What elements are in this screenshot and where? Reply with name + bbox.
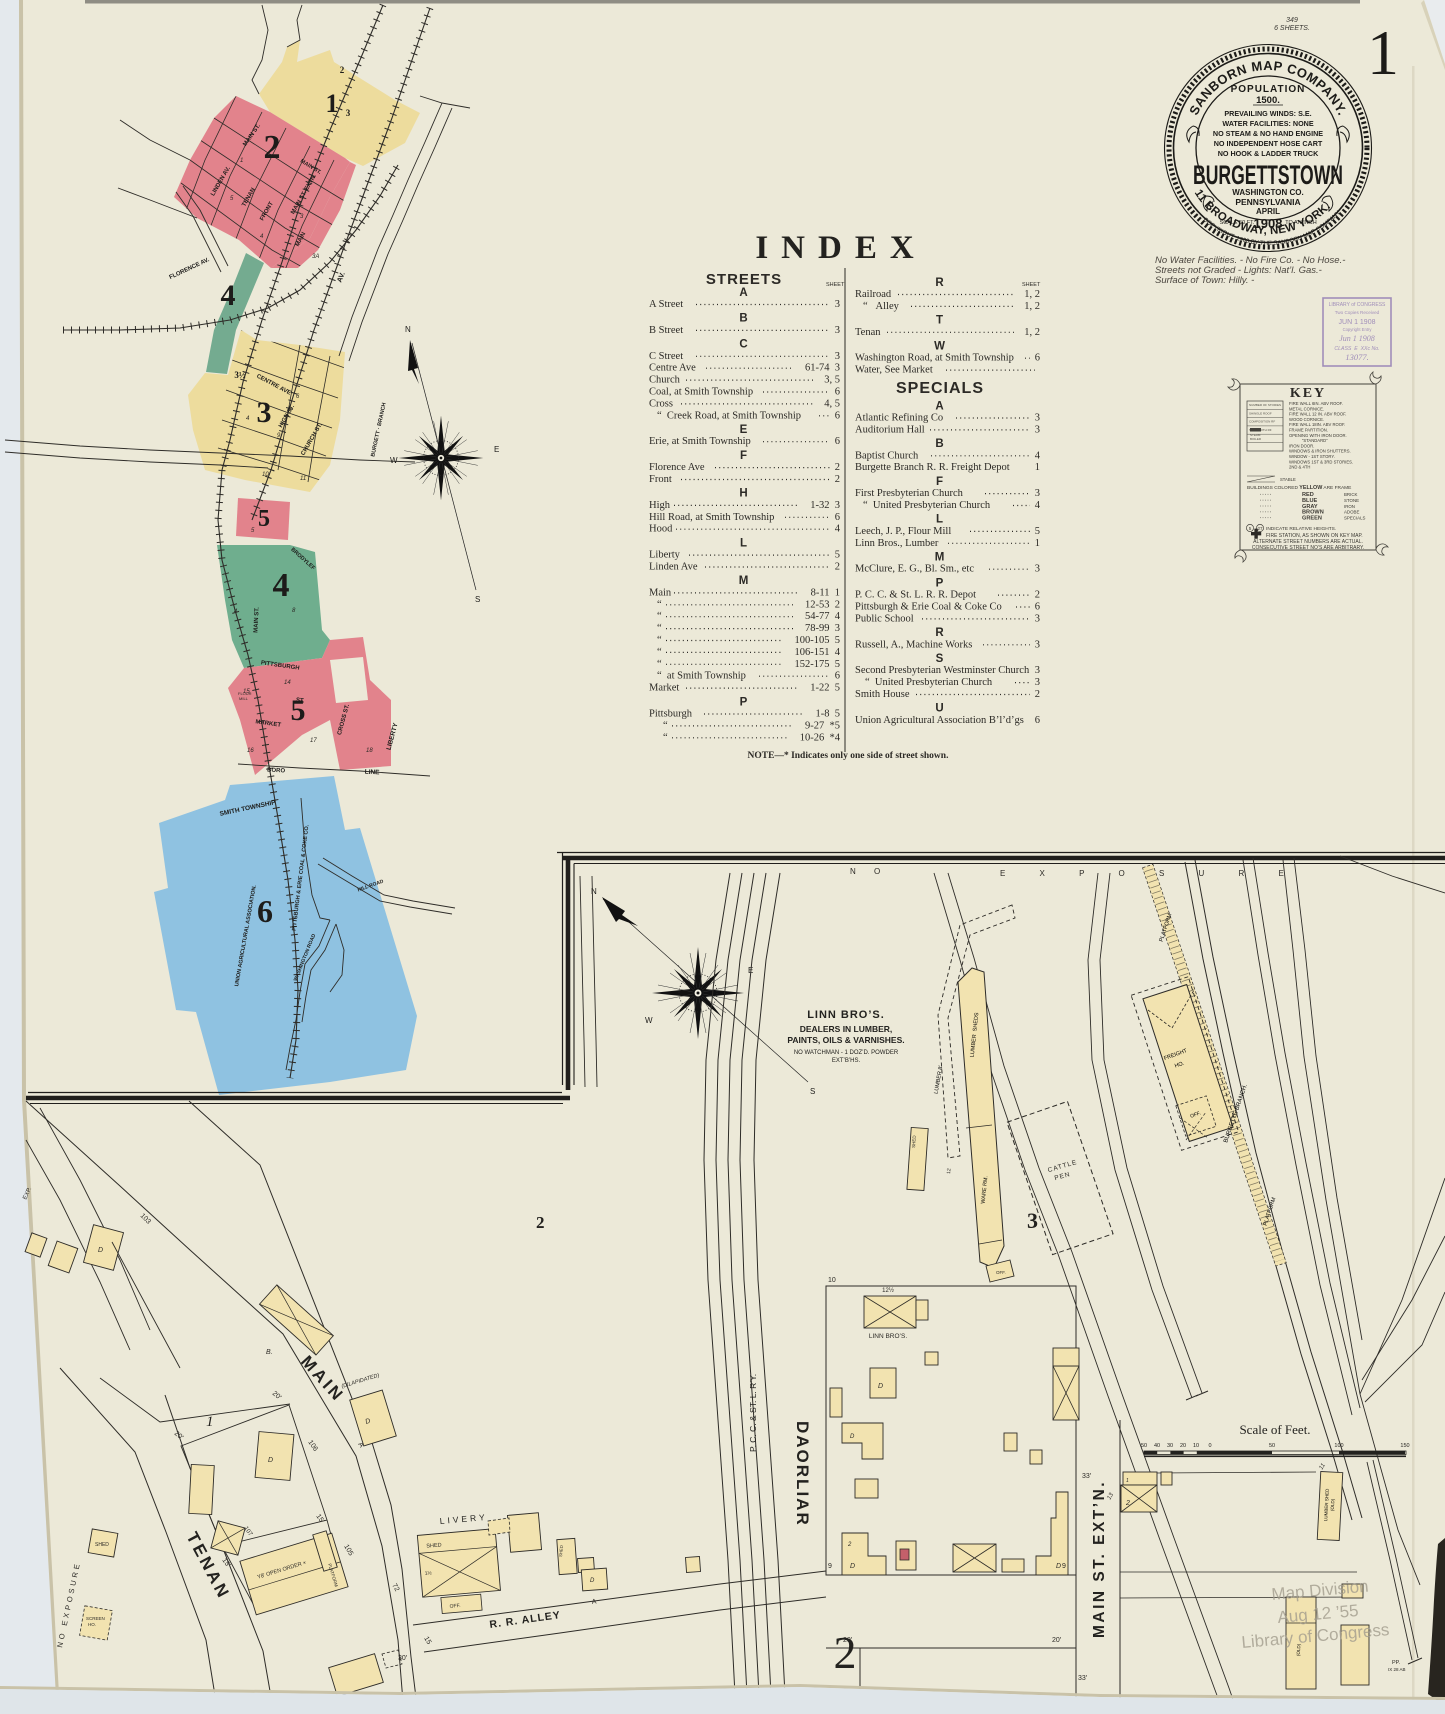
svg-text:6: 6 xyxy=(835,671,840,682)
svg-text:LIBRARY of CONGRESS: LIBRARY of CONGRESS xyxy=(1329,302,1386,308)
svg-text:Auditorium Hall: Auditorium Hall xyxy=(855,424,925,435)
svg-text:DEALERS IN LUMBER,: DEALERS IN LUMBER, xyxy=(800,1024,893,1034)
svg-text:12½: 12½ xyxy=(882,1287,894,1294)
svg-text:20: 20 xyxy=(1180,1443,1186,1449)
svg-text:1: 1 xyxy=(1035,462,1040,473)
svg-text:Copyright Entry: Copyright Entry xyxy=(1343,327,1373,332)
svg-text:Leech, J. P., Flour Mill: Leech, J. P., Flour Mill xyxy=(855,526,951,537)
svg-text:106-151 4: 106-151 4 xyxy=(795,647,841,658)
svg-text:SCALE 50 FT.: SCALE 50 FT. xyxy=(1220,220,1255,226)
svg-text:NO INDEPENDENT HOSE CART: NO INDEPENDENT HOSE CART xyxy=(1214,139,1323,148)
svg-text:A Street: A Street xyxy=(649,299,683,310)
svg-text:17: 17 xyxy=(310,738,317,744)
svg-text:14: 14 xyxy=(284,680,291,686)
svg-text:PENNSYLVANIA: PENNSYLVANIA xyxy=(1235,197,1300,207)
svg-text:(OLD): (OLD) xyxy=(1330,1498,1336,1511)
svg-text:MAIN ST. EXT’N.: MAIN ST. EXT’N. xyxy=(1091,1480,1108,1638)
svg-text:M: M xyxy=(935,552,946,564)
svg-text:NUMBER OF STORIES: NUMBER OF STORIES xyxy=(1249,403,1281,407)
svg-text:LINE: LINE xyxy=(364,769,380,777)
svg-text:4: 4 xyxy=(221,279,236,312)
svg-text:OFF.: OFF. xyxy=(449,1603,460,1610)
svg-text:A: A xyxy=(739,287,748,299)
svg-text:B: B xyxy=(935,438,944,450)
svg-text:9-27 *5: 9-27 *5 xyxy=(805,720,840,731)
svg-text:27: 27 xyxy=(1257,526,1263,531)
svg-text:9: 9 xyxy=(828,1563,832,1570)
svg-text:Two Copies Received: Two Copies Received xyxy=(1335,310,1380,315)
svg-text:E: E xyxy=(494,445,499,454)
svg-text:PP.: PP. xyxy=(1392,1660,1401,1666)
svg-text:6: 6 xyxy=(1035,602,1040,613)
svg-text:Florence Ave: Florence Ave xyxy=(649,462,705,473)
svg-text:Hood: Hood xyxy=(649,524,673,535)
svg-text:COMPOSITION RF: COMPOSITION RF xyxy=(1249,420,1275,424)
svg-text:1500.: 1500. xyxy=(1256,95,1280,106)
svg-text:PEN: PEN xyxy=(1054,1171,1072,1182)
svg-text:1: 1 xyxy=(1367,17,1399,88)
svg-text:OPENING WITH IRON DOOR.: OPENING WITH IRON DOOR. xyxy=(1289,433,1347,438)
svg-text:WINDOWS & IRON SHUTTERS.: WINDOWS & IRON SHUTTERS. xyxy=(1289,449,1351,454)
svg-text:105: 105 xyxy=(342,1544,354,1558)
svg-text:S: S xyxy=(936,653,945,665)
svg-text:6 SHEETS.: 6 SHEETS. xyxy=(1274,25,1310,32)
svg-text:3: 3 xyxy=(1035,639,1040,650)
svg-text:2: 2 xyxy=(1035,689,1040,700)
svg-text:2: 2 xyxy=(835,562,840,573)
svg-text:150: 150 xyxy=(1400,1443,1409,1449)
svg-text:2: 2 xyxy=(340,65,345,75)
svg-text:METAL CORNICE.: METAL CORNICE. xyxy=(1289,406,1324,411)
svg-text:L: L xyxy=(936,514,944,526)
svg-text:2: 2 xyxy=(1125,1500,1130,1507)
svg-text:R. R. ALLEY: R. R. ALLEY xyxy=(489,1609,562,1631)
svg-text:2: 2 xyxy=(847,1542,852,1548)
svg-text:F: F xyxy=(936,476,944,488)
svg-text:“: “ xyxy=(657,647,662,658)
svg-text:W: W xyxy=(390,456,398,465)
svg-text:BRICK: BRICK xyxy=(1344,492,1357,497)
svg-text:Atlantic Refining Co: Atlantic Refining Co xyxy=(855,413,943,424)
svg-text:Public School: Public School xyxy=(855,613,914,624)
svg-text:A: A xyxy=(356,1441,365,1449)
svg-text:BOILER: BOILER xyxy=(1250,437,1262,441)
svg-text:SCREEN: SCREEN xyxy=(86,1616,105,1621)
svg-text:6: 6 xyxy=(1035,715,1040,726)
svg-text:103: 103 xyxy=(139,1212,152,1225)
svg-text:1: 1 xyxy=(1035,538,1040,549)
svg-text:WASHINGTON CO.: WASHINGTON CO. xyxy=(1232,188,1303,197)
svg-text:0: 0 xyxy=(1208,1443,1211,1449)
svg-text:1: 1 xyxy=(326,89,339,118)
svg-text:6: 6 xyxy=(835,410,840,421)
svg-text:1-8 5: 1-8 5 xyxy=(816,709,841,720)
svg-text:Market: Market xyxy=(649,683,679,694)
svg-text:SHEET: SHEET xyxy=(1022,282,1041,288)
svg-text:Cross: Cross xyxy=(649,398,673,409)
svg-text:3: 3 xyxy=(835,351,840,362)
svg-text:SPECIALS: SPECIALS xyxy=(1344,516,1366,521)
svg-text:5: 5 xyxy=(835,550,840,561)
svg-text:FIRE WALL 12 IN. ABV ROOF.: FIRE WALL 12 IN. ABV ROOF. xyxy=(1289,412,1346,417)
svg-text:MILL: MILL xyxy=(239,696,249,701)
svg-text:ST.: ST. xyxy=(295,697,305,704)
svg-text:LINN BRO’S.: LINN BRO’S. xyxy=(869,1333,907,1340)
svg-text:Pittsburgh: Pittsburgh xyxy=(649,709,693,720)
svg-text:D: D xyxy=(268,1457,273,1464)
svg-text:72: 72 xyxy=(390,1583,400,1593)
svg-text:40: 40 xyxy=(1154,1443,1160,1449)
svg-text:B.: B. xyxy=(266,1349,273,1356)
svg-text:Washington Road, at Smith Town: Washington Road, at Smith Township xyxy=(855,353,1014,364)
svg-text:First Presbyterian Church: First Presbyterian Church xyxy=(855,488,964,499)
svg-text:“: “ xyxy=(657,623,662,634)
svg-text:WATER FACILITIES: NONE: WATER FACILITIES: NONE xyxy=(1222,119,1314,128)
svg-text:6: 6 xyxy=(257,893,273,929)
svg-text:3: 3 xyxy=(1035,677,1040,688)
svg-text:11: 11 xyxy=(1319,1463,1327,1471)
svg-text:SHED: SHED xyxy=(911,1135,917,1149)
svg-text:FIRE WALL 6IN. ABV ROOF.: FIRE WALL 6IN. ABV ROOF. xyxy=(1289,401,1343,406)
svg-text:Water, See Market: Water, See Market xyxy=(855,365,933,376)
svg-text:FIRE WALL 18IN. ABV ROOF.: FIRE WALL 18IN. ABV ROOF. xyxy=(1289,422,1345,427)
svg-text:“STANDARD”: “STANDARD” xyxy=(1302,438,1328,443)
svg-text:“: “ xyxy=(657,599,662,610)
svg-text:L: L xyxy=(740,537,748,549)
svg-text:50: 50 xyxy=(1269,1443,1275,1449)
svg-text:MAIN: MAIN xyxy=(297,1352,348,1406)
svg-text:PREVAILING WINDS: S.E.: PREVAILING WINDS: S.E. xyxy=(1224,109,1311,118)
svg-text:5: 5 xyxy=(1035,526,1040,537)
svg-text:GREEN: GREEN xyxy=(1302,516,1322,522)
svg-text:100: 100 xyxy=(1334,1443,1343,1449)
svg-text:2: 2 xyxy=(835,474,840,485)
svg-text:4, 5: 4, 5 xyxy=(824,398,840,409)
svg-text:NO WATCHMAN - 1 DOZ’D. POWDER: NO WATCHMAN - 1 DOZ’D. POWDER xyxy=(794,1050,899,1056)
svg-text:61-74 3: 61-74 3 xyxy=(805,363,840,374)
svg-text:8-11 1: 8-11 1 xyxy=(811,587,840,598)
svg-text:U: U xyxy=(935,703,944,715)
svg-text:N O: N O xyxy=(850,867,888,876)
svg-text:30: 30 xyxy=(1167,1443,1173,1449)
svg-text:1: 1 xyxy=(206,1414,214,1430)
svg-text:BUILDINGS COLORED YELLOW ARE F: BUILDINGS COLORED YELLOW ARE FRAME xyxy=(1247,485,1351,491)
svg-text:20′: 20′ xyxy=(1052,1637,1062,1644)
svg-text:152-175 5: 152-175 5 xyxy=(795,659,841,670)
svg-text:6: 6 xyxy=(835,436,840,447)
svg-text:3: 3 xyxy=(835,325,840,336)
svg-text:E: E xyxy=(740,424,749,436)
svg-text:S: S xyxy=(810,1087,815,1096)
svg-text:3: 3 xyxy=(1035,488,1040,499)
svg-text:78-99 3: 78-99 3 xyxy=(805,623,840,634)
svg-text:High: High xyxy=(649,500,671,511)
svg-text:Map Division: Map Division xyxy=(1271,1577,1370,1604)
svg-text:3: 3 xyxy=(1035,613,1040,624)
svg-text:100-105 5: 100-105 5 xyxy=(795,635,841,646)
svg-text:15: 15 xyxy=(422,1636,432,1646)
svg-text:16: 16 xyxy=(247,748,254,754)
svg-text:R: R xyxy=(935,277,944,289)
svg-text:F: F xyxy=(740,450,748,462)
svg-text:D: D xyxy=(98,1247,103,1254)
svg-text:NOTE—* Indicates only one side: NOTE—* Indicates only one side of street… xyxy=(748,751,949,761)
svg-text:“ United Presbyterian Church: “ United Presbyterian Church xyxy=(865,677,993,688)
svg-text:H: H xyxy=(739,488,748,500)
svg-text:2: 2 xyxy=(834,1627,857,1678)
svg-text:EXT’B’HS.: EXT’B’HS. xyxy=(832,1058,861,1064)
svg-text:D: D xyxy=(1056,1563,1061,1570)
svg-text:10: 10 xyxy=(828,1277,836,1284)
svg-text:2: 2 xyxy=(835,462,840,473)
svg-text:R: R xyxy=(935,627,944,639)
svg-text:54-77 4: 54-77 4 xyxy=(805,611,841,622)
svg-text:2: 2 xyxy=(536,1213,545,1232)
svg-text:“: “ xyxy=(657,635,662,646)
svg-text:Linn Bros., Lumber: Linn Bros., Lumber xyxy=(855,538,939,549)
svg-text:Hill Road, at Smith Township: Hill Road, at Smith Township xyxy=(649,512,774,523)
svg-text:D: D xyxy=(878,1383,883,1390)
svg-text:SHED: SHED xyxy=(558,1545,564,1557)
svg-text:1: 1 xyxy=(1126,1478,1129,1484)
svg-text:JUN 1 1908: JUN 1 1908 xyxy=(1339,319,1376,326)
svg-text:6: 6 xyxy=(835,387,840,398)
svg-text:“ Alley: “ Alley xyxy=(863,301,900,312)
svg-text:33′: 33′ xyxy=(1082,1473,1092,1480)
svg-text:HO.: HO. xyxy=(88,1622,96,1627)
svg-text:C Street: C Street xyxy=(649,351,683,362)
svg-text:APRIL: APRIL xyxy=(1256,207,1280,216)
svg-text:McClure, E. G., Bl. Sm., etc: McClure, E. G., Bl. Sm., etc xyxy=(855,564,974,575)
svg-text:3: 3 xyxy=(1035,564,1040,575)
svg-text:50: 50 xyxy=(1141,1443,1147,1449)
svg-text:W: W xyxy=(934,341,946,353)
svg-text:IRON: IRON xyxy=(1344,504,1355,509)
svg-text:2ND & 4TH: 2ND & 4TH xyxy=(1289,465,1310,470)
svg-text:BORO: BORO xyxy=(267,768,286,775)
svg-text:Second Presbyterian Westminste: Second Presbyterian Westminster Church xyxy=(855,665,1030,676)
svg-text:Railroad: Railroad xyxy=(855,289,892,300)
svg-text:4: 4 xyxy=(273,567,290,604)
svg-text:IX 28 AB: IX 28 AB xyxy=(1388,1667,1406,1672)
svg-text:1-22 5: 1-22 5 xyxy=(810,683,840,694)
svg-text:13077.: 13077. xyxy=(1345,352,1368,362)
svg-text:INDEX: INDEX xyxy=(755,230,926,266)
svg-text:Liberty: Liberty xyxy=(649,550,681,561)
svg-text:4: 4 xyxy=(835,524,841,535)
svg-text:SHED: SHED xyxy=(95,1542,109,1548)
svg-text:P: P xyxy=(740,696,749,708)
svg-text:TO AN INCH: TO AN INCH xyxy=(1285,220,1316,226)
svg-text:FLORENCE AV.: FLORENCE AV. xyxy=(169,257,211,281)
svg-text:Smith House: Smith House xyxy=(855,689,910,700)
svg-text:Front: Front xyxy=(649,474,672,485)
svg-text:10-26 *4: 10-26 *4 xyxy=(800,732,841,743)
svg-text:PAINTS, OILS & VARNISHES.: PAINTS, OILS & VARNISHES. xyxy=(787,1035,904,1045)
svg-text:6: 6 xyxy=(1035,353,1040,364)
svg-text:3: 3 xyxy=(257,396,272,429)
svg-text:3: 3 xyxy=(1035,413,1040,424)
svg-text:INDICATE RELATIVE HEIGHTS.: INDICATE RELATIVE HEIGHTS. xyxy=(1266,526,1336,532)
svg-text:3: 3 xyxy=(346,108,351,118)
svg-text:Linden Ave: Linden Ave xyxy=(649,562,698,573)
svg-text:WINDOWS 1ST & 3RD STORIES.: WINDOWS 1ST & 3RD STORIES. xyxy=(1289,459,1353,464)
svg-text:Union Agricultural Association: Union Agricultural Association B’l’d’gs xyxy=(855,715,1024,726)
svg-text:Erie, at Smith Township: Erie, at Smith Township xyxy=(649,436,751,447)
svg-text:Baptist Church: Baptist Church xyxy=(855,450,919,461)
svg-text:3: 3 xyxy=(835,299,840,310)
svg-text:3: 3 xyxy=(1027,1208,1038,1233)
svg-text:WINDOW - 1ST STORY.: WINDOW - 1ST STORY. xyxy=(1289,454,1335,459)
svg-text:Russell, A., Machine Works: Russell, A., Machine Works xyxy=(855,639,972,650)
svg-text:4: 4 xyxy=(1035,450,1041,461)
svg-text:1, 2: 1, 2 xyxy=(1024,327,1040,338)
svg-text:“: “ xyxy=(663,720,668,731)
svg-text:9: 9 xyxy=(1062,1563,1066,1570)
svg-text:STABLE: STABLE xyxy=(1280,477,1296,482)
svg-text:1, 2: 1, 2 xyxy=(1024,289,1040,300)
svg-text:Scale of Feet.: Scale of Feet. xyxy=(1239,1422,1310,1437)
svg-text:P: P xyxy=(936,577,945,589)
svg-text:3: 3 xyxy=(1035,424,1040,435)
svg-text:3A: 3A xyxy=(312,254,319,260)
svg-text:11: 11 xyxy=(300,476,306,482)
svg-text:20′: 20′ xyxy=(271,1390,283,1402)
svg-text:1: 1 xyxy=(240,158,243,164)
svg-text:10: 10 xyxy=(1193,1443,1199,1449)
svg-text:(DILAPIDATED): (DILAPIDATED) xyxy=(341,1373,381,1390)
svg-text:“: “ xyxy=(657,611,662,622)
svg-text:1-32 3: 1-32 3 xyxy=(810,500,840,511)
svg-text:NO HOOK & LADDER TRUCK: NO HOOK & LADDER TRUCK xyxy=(1218,149,1319,158)
svg-text:“ United Presbyterian Church: “ United Presbyterian Church xyxy=(863,500,991,511)
svg-text:N: N xyxy=(405,325,411,334)
svg-text:18: 18 xyxy=(366,748,373,754)
svg-text:10: 10 xyxy=(262,472,269,478)
svg-text:STONE: STONE xyxy=(1344,498,1359,503)
svg-text:1, 2: 1, 2 xyxy=(1024,301,1040,312)
svg-text:D: D xyxy=(850,1563,855,1570)
svg-text:IRON DOOR.: IRON DOOR. xyxy=(1289,443,1314,448)
svg-text:“: “ xyxy=(657,659,662,670)
svg-text:B Street: B Street xyxy=(649,325,683,336)
svg-text:349: 349 xyxy=(1286,17,1298,24)
svg-text:6: 6 xyxy=(835,512,840,523)
svg-text:CATTLE: CATTLE xyxy=(1047,1159,1078,1174)
svg-text:FRAME PARTITION.: FRAME PARTITION. xyxy=(1289,428,1328,433)
svg-text:D: D xyxy=(850,1434,855,1440)
svg-text:20′: 20′ xyxy=(173,1430,185,1442)
svg-text:WOOD CORNICE.: WOOD CORNICE. xyxy=(1289,417,1324,422)
svg-text:P. C. C. & ST. L. R’Y.: P. C. C. & ST. L. R’Y. xyxy=(748,1374,758,1452)
svg-text:OFF.: OFF. xyxy=(996,1270,1006,1275)
svg-text:Surface of Town: Hilly. -: Surface of Town: Hilly. - xyxy=(1155,275,1254,286)
svg-text:“ at Smith Township: “ at Smith Township xyxy=(657,671,746,682)
svg-text:SHINGLE ROOF: SHINGLE ROOF xyxy=(1249,411,1272,415)
svg-text:ADOBE: ADOBE xyxy=(1344,510,1359,515)
svg-text:KEY: KEY xyxy=(1290,386,1326,401)
svg-text:Tenan: Tenan xyxy=(855,327,881,338)
svg-text:DAORLIAR: DAORLIAR xyxy=(793,1421,812,1527)
svg-text:POPULATION: POPULATION xyxy=(1231,84,1306,95)
svg-text:5: 5 xyxy=(1249,526,1252,531)
svg-text:SHEET: SHEET xyxy=(826,282,845,288)
svg-text:Church: Church xyxy=(649,375,681,386)
svg-text:106: 106 xyxy=(306,1439,318,1453)
svg-text:4: 4 xyxy=(1035,500,1041,511)
svg-text:BURGETT · BRANCH: BURGETT · BRANCH xyxy=(370,402,387,457)
svg-text:W: W xyxy=(645,1016,653,1025)
svg-text:T: T xyxy=(936,315,944,327)
svg-text:Pittsburgh & Erie Coal & Coke: Pittsburgh & Erie Coal & Coke Co xyxy=(855,602,1002,613)
svg-text:Centre Ave: Centre Ave xyxy=(649,363,696,374)
svg-text:A: A xyxy=(591,1598,597,1606)
svg-text:P. C. C. & St. L. R. R. Depot: P. C. C. & St. L. R. R. Depot xyxy=(855,590,976,601)
svg-text:STREETS: STREETS xyxy=(706,271,782,288)
svg-text:12: 12 xyxy=(946,1168,953,1174)
svg-text:3, 5: 3, 5 xyxy=(824,375,840,386)
svg-text:S: S xyxy=(475,595,480,604)
svg-text:A: A xyxy=(935,400,944,412)
svg-text:12-53 2: 12-53 2 xyxy=(805,599,840,610)
svg-text:Main: Main xyxy=(649,587,672,598)
svg-text:SPECIALS: SPECIALS xyxy=(896,380,984,397)
svg-text:1908: 1908 xyxy=(1254,216,1283,231)
svg-text:B: B xyxy=(739,313,748,325)
svg-text:2: 2 xyxy=(1035,590,1040,601)
svg-text:15′: 15′ xyxy=(314,1513,325,1525)
svg-text:Burgette Branch R. R. Freight: Burgette Branch R. R. Freight Depot xyxy=(855,462,1010,473)
svg-text:M: M xyxy=(739,575,750,587)
svg-text:Jun 1 1908: Jun 1 1908 xyxy=(1339,334,1375,343)
svg-text:C: C xyxy=(739,339,748,351)
svg-text:“ Creek Road, at Smith Townsh: “ Creek Road, at Smith Township xyxy=(657,410,801,421)
svg-text:Coal, at Smith Township: Coal, at Smith Township xyxy=(649,387,753,398)
svg-text:3: 3 xyxy=(1035,665,1040,676)
svg-text:33′: 33′ xyxy=(1078,1675,1088,1682)
svg-text:5: 5 xyxy=(258,506,270,532)
svg-text:D: D xyxy=(590,1578,595,1584)
svg-text:CONSECUTIVE STREET NO’S ARE AR: CONSECUTIVE STREET NO’S ARE ARBITRARY. xyxy=(1252,545,1364,551)
svg-text:LIVERY: LIVERY xyxy=(439,1512,488,1526)
svg-text:NO STEAM & NO HAND ENGINE: NO STEAM & NO HAND ENGINE xyxy=(1213,129,1323,138)
svg-text:“: “ xyxy=(663,732,668,743)
svg-text:2: 2 xyxy=(264,129,281,166)
svg-text:LINN BRO’S.: LINN BRO’S. xyxy=(807,1009,885,1021)
svg-text:BURGETTSTOWN: BURGETTSTOWN xyxy=(1193,160,1343,190)
svg-text:3½: 3½ xyxy=(234,370,246,380)
svg-text:NO EXPOSURE: NO EXPOSURE xyxy=(55,1560,82,1648)
